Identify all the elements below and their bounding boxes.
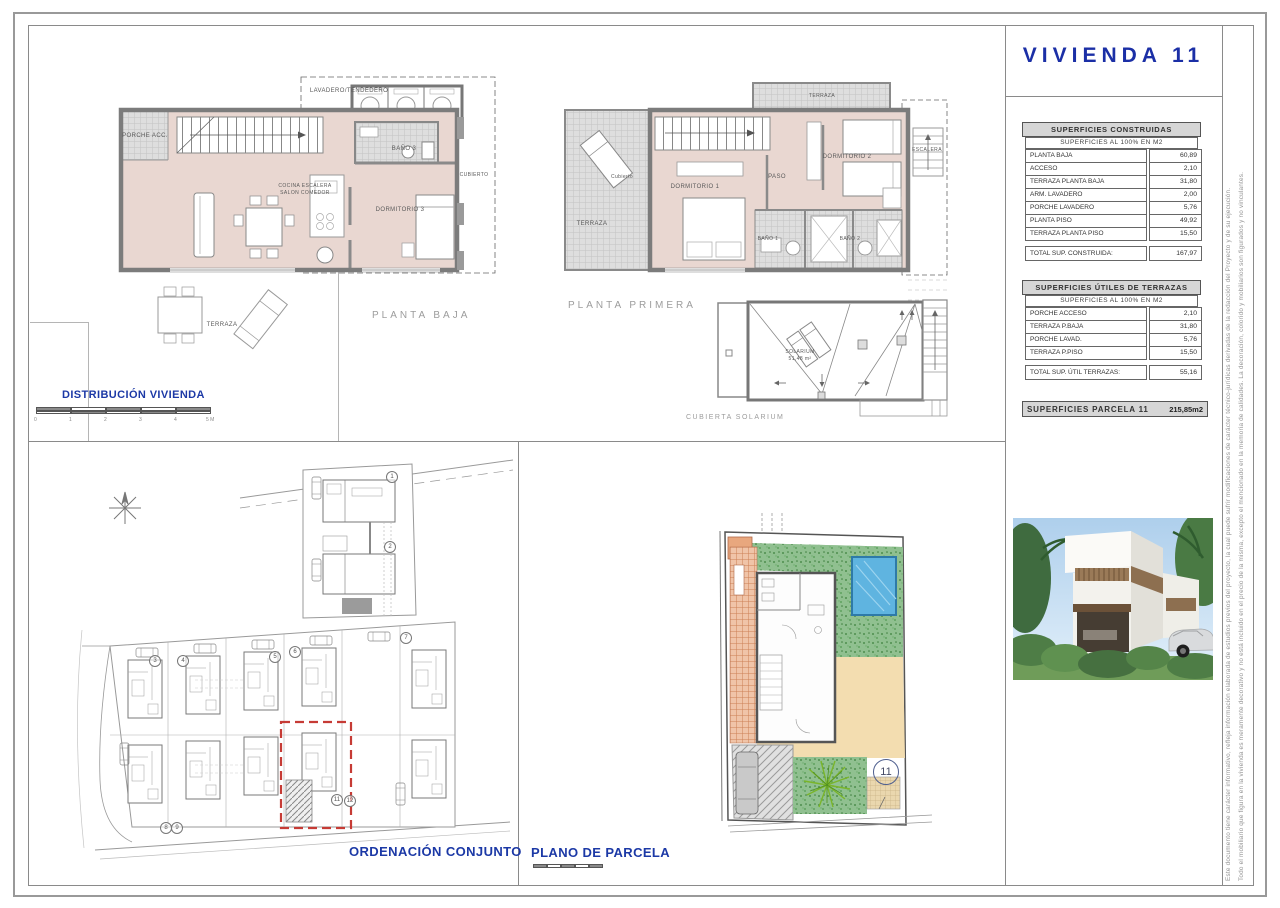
terrace-table: [158, 297, 202, 333]
label-dormitorio2: DORMITORIO 2: [823, 154, 872, 160]
parcel-scale-bar: [533, 864, 603, 868]
table-row-label: PORCHE LAVADERO: [1025, 201, 1147, 215]
scale-tick: 1: [69, 417, 72, 423]
plot-number: 6: [289, 646, 301, 658]
plot-number: 3: [149, 655, 161, 667]
table-row-value: 15,50: [1149, 346, 1202, 360]
label-paso: PASO: [768, 174, 786, 180]
sun-lounger: [234, 290, 287, 349]
label-cubierto: CUBIERTO: [460, 172, 489, 178]
table-row-value: 2,10: [1149, 307, 1202, 321]
label-salon: SALON COMEDOR: [280, 190, 330, 196]
total-label: TOTAL SUP. CONSTRUIDA:: [1025, 246, 1147, 261]
scale-tick: 5 M: [206, 417, 214, 423]
planta-baja-title: PLANTA BAJA: [372, 310, 470, 321]
parcela-label: SUPERFICIES PARCELA 11: [1027, 405, 1149, 414]
plot-number: 4: [177, 655, 189, 667]
plot-number: 12: [344, 795, 356, 807]
table-row-label: TERRAZA PLANTA BAJA: [1025, 175, 1147, 189]
boundary-line: [30, 322, 88, 323]
label-solarium-area: 51,48 m²: [789, 356, 812, 362]
table-row-value: 5,76: [1149, 201, 1202, 215]
planta-primera-title: PLANTA PRIMERA: [568, 300, 696, 311]
table-row-value: 49,92: [1149, 214, 1202, 228]
scale-bar-row2: [36, 411, 211, 415]
label-bano2: BAÑO 2: [840, 236, 861, 242]
plot-number: 11: [331, 794, 343, 806]
terrazas-subheader: SUPERFICIES AL 100% EN M2: [1025, 295, 1198, 307]
plano-parcela-title: PLANO DE PARCELA: [531, 845, 670, 860]
planta-baja-drawing: [110, 75, 505, 375]
table-row-label: PORCHE LAVAD.: [1025, 333, 1147, 347]
sheet-title: VIVIENDA 11: [1005, 44, 1222, 68]
table-row-label: PLANTA PISO: [1025, 214, 1147, 228]
disclaimer-line-1: Este documento tiene carácter informativ…: [1225, 29, 1237, 881]
plot-number: 7: [400, 632, 412, 644]
label-dormitorio3: DORMITORIO 3: [376, 207, 425, 213]
planta-primera-drawing: [555, 70, 975, 320]
table-row-value: 2,00: [1149, 188, 1202, 202]
label-bano3: BAÑO 3: [392, 146, 416, 152]
table-row-label: TERRAZA PLANTA PISO: [1025, 227, 1147, 241]
table-row-value: 60,89: [1149, 149, 1202, 163]
table-row-value: 31,80: [1149, 320, 1202, 334]
parcela-value: 215,85m2: [1169, 405, 1203, 414]
site-plan-drawing: [40, 450, 515, 875]
table-row-label: PLANTA BAJA: [1025, 149, 1147, 163]
parcela-summary: SUPERFICIES PARCELA 11 215,85m2: [1022, 401, 1208, 417]
disclaimer-line-2: Todo el mobiliario que figura en la vivi…: [1238, 29, 1250, 881]
label-terraza-baja: TERRAZA: [207, 322, 238, 328]
label-cocina: COCINA ESCALERA: [278, 183, 331, 189]
plot-number: 2: [384, 541, 396, 553]
boundary-line: [88, 322, 89, 441]
plot-number: 9: [171, 822, 183, 834]
compass-rose: [109, 492, 141, 524]
divider-title-bottom: [1005, 96, 1222, 97]
house-render-photo: [1013, 518, 1213, 680]
terrace-left: [565, 110, 650, 270]
plan-sheet: LAVADERO/TENDEDERO PORCHE ACC. BAÑO 3 CU…: [0, 0, 1280, 908]
divider-vertical-bottom: [518, 441, 519, 885]
divider-titleblock: [1005, 25, 1006, 885]
bed: [843, 120, 901, 154]
plot-number: 5: [269, 651, 281, 663]
label-terraza-top: TERRAZA: [809, 93, 835, 99]
table-row-label: ARM. LAVADERO: [1025, 188, 1147, 202]
scale-tick: 0: [34, 417, 37, 423]
bed: [416, 195, 454, 259]
table-row-label: TERRAZA P.PISO: [1025, 346, 1147, 360]
terrazas-header: SUPERFICIES ÚTILES DE TERRAZAS: [1022, 280, 1201, 295]
cubierta-solarium-drawing: [710, 290, 955, 425]
construidas-header: SUPERFICIES CONSTRUIDAS: [1022, 122, 1201, 137]
divider-horizontal: [28, 441, 1005, 442]
parcel-plot-number: 11: [873, 759, 899, 785]
distribucion-label: DISTRIBUCIÓN VIVIENDA: [62, 389, 205, 401]
total-label: TOTAL SUP. ÚTIL TERRAZAS:: [1025, 365, 1147, 380]
label-lavadero: LAVADERO/TENDEDERO: [310, 88, 388, 94]
parcel-plan-drawing: [700, 505, 955, 840]
label-solarium: SOLARIUM: [785, 349, 814, 355]
label-bano1: BAÑO 1: [758, 236, 779, 242]
parked-car: [736, 752, 758, 814]
scale-tick: 2: [104, 417, 107, 423]
total-value: 55,16: [1149, 365, 1202, 380]
divider-disclaimer: [1222, 25, 1223, 885]
label-terraza-left: TERRAZA: [577, 221, 608, 227]
plot11-store: [286, 780, 312, 822]
plot-number: 1: [386, 471, 398, 483]
table-row-value: 2,10: [1149, 162, 1202, 176]
label-cubierto-p1: Cubierto: [611, 174, 633, 180]
dark-patio: [342, 598, 372, 614]
table-row-label: PORCHE ACCESO: [1025, 307, 1147, 321]
table-row-label: TERRAZA P.BAJA: [1025, 320, 1147, 334]
ordenacion-conjunto-title: ORDENACIÓN CONJUNTO: [349, 844, 522, 859]
label-escalera: ESCALERA: [912, 147, 942, 153]
total-value: 167,97: [1149, 246, 1202, 261]
table-row-value: 15,50: [1149, 227, 1202, 241]
label-dormitorio1: DORMITORIO 1: [671, 184, 720, 190]
table-row-value: 5,76: [1149, 333, 1202, 347]
label-porche-acc: PORCHE ACC.: [122, 133, 168, 139]
table-row-label: ACCESO: [1025, 162, 1147, 176]
scale-tick: 3: [139, 417, 142, 423]
table-row-value: 31,80: [1149, 175, 1202, 189]
construidas-subheader: SUPERFICIES AL 100% EN M2: [1025, 137, 1198, 149]
scale-tick: 4: [174, 417, 177, 423]
cubierta-solarium-title: CUBIERTA SOLARIUM: [686, 414, 784, 421]
